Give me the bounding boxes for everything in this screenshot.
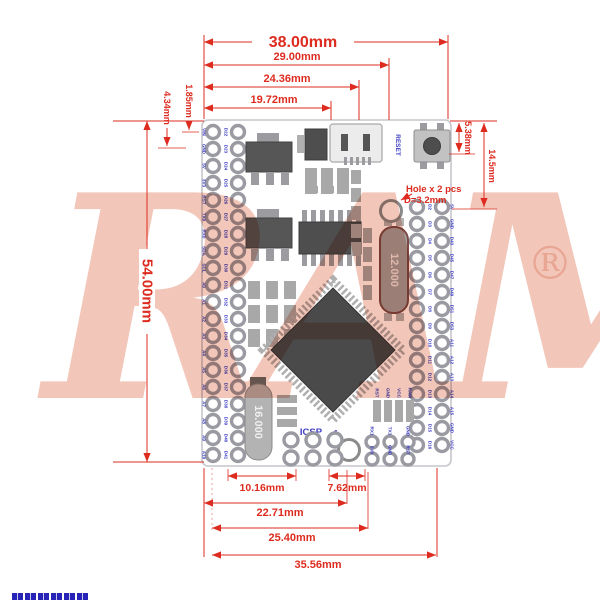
dim-7-62mm: 7.62mm <box>327 482 366 494</box>
dimension-drawing: VIND22GNDD235VD243V3D25RSTD26TX0D27RX0D2… <box>0 0 600 600</box>
dim-board-width: 38.00mm <box>269 34 338 51</box>
dim-29mm: 29.00mm <box>273 51 320 63</box>
dim-14-5mm: 14.5mm <box>487 149 497 183</box>
dim-1-85mm: 1.85mm <box>184 84 194 118</box>
dim-5-38mm: 5.38mm <box>463 121 473 155</box>
cropped-blue-text <box>12 593 90 600</box>
dim-4-34mm: 4.34mm <box>162 91 172 125</box>
dimension-lines <box>147 42 484 555</box>
dim-22-71mm: 22.71mm <box>256 507 303 519</box>
dim-24-36mm: 24.36mm <box>263 73 310 85</box>
hole-note-line1: Hole x 2 pcs <box>406 184 461 195</box>
hole-note-line2: D=3.2mm <box>404 195 447 206</box>
dimension-labels: 38.00mm 29.00mm 24.36mm 19.72mm 54.00mm … <box>139 34 498 571</box>
dim-35-56mm: 35.56mm <box>294 559 341 571</box>
dim-25-40mm: 25.40mm <box>268 532 315 544</box>
dim-19-72mm: 19.72mm <box>250 94 297 106</box>
dim-board-height: 54.00mm <box>139 259 156 323</box>
dimension-annotations: 38.00mm 29.00mm 24.36mm 19.72mm 54.00mm … <box>0 0 600 600</box>
dim-10-16mm: 10.16mm <box>240 482 285 494</box>
